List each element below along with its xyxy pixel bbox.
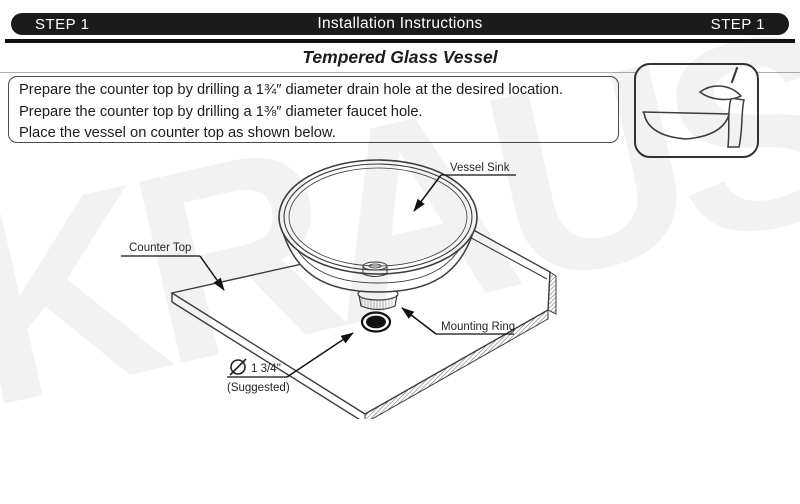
installation-diagram: Vessel Sink Counter Top Mounting Ring 1 … xyxy=(0,0,800,419)
counter-top-label: Counter Top xyxy=(129,242,191,254)
vessel-sink-label: Vessel Sink xyxy=(450,162,510,174)
vessel-sink-drawing xyxy=(279,160,477,292)
drain-suggested-label: (Suggested) xyxy=(227,382,290,394)
mounting-ring-label: Mounting Ring xyxy=(441,321,515,333)
drain-diameter-label: 1 3/4'' xyxy=(251,363,281,375)
diameter-symbol-icon xyxy=(230,359,246,375)
callout-counter-top: Counter Top xyxy=(121,242,224,290)
drain-hole xyxy=(362,313,390,332)
